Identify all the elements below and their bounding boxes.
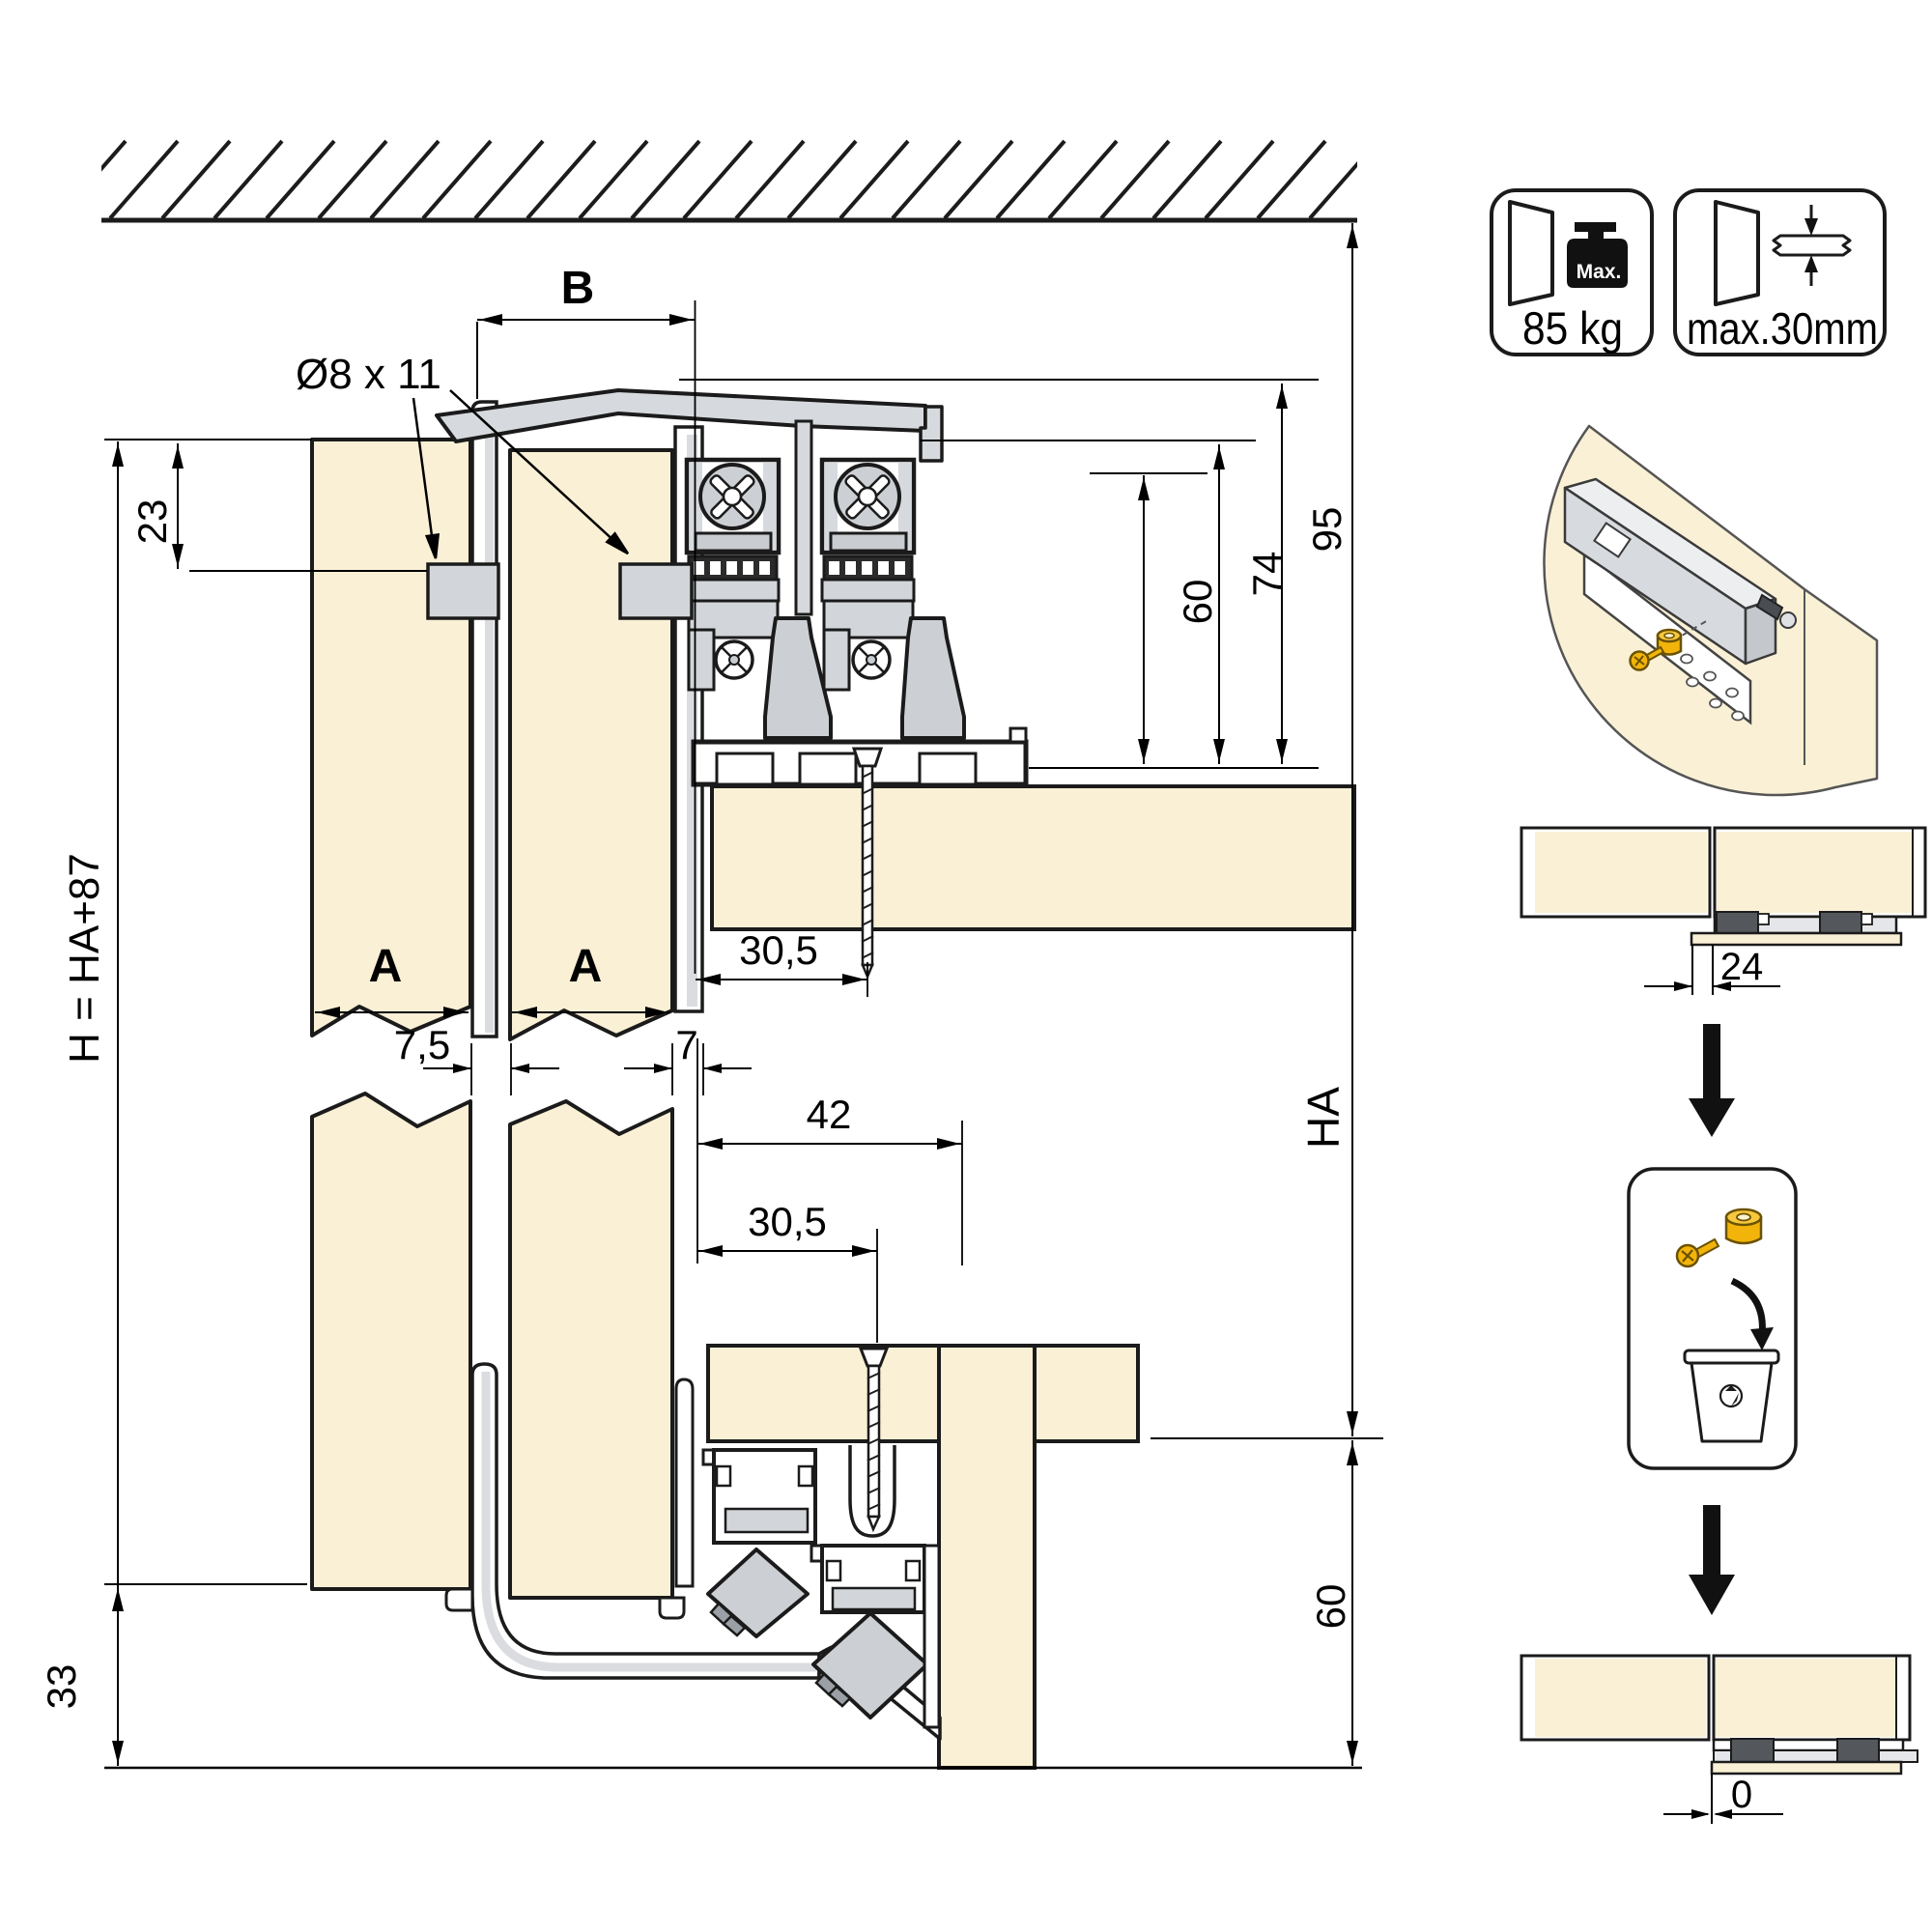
svg-text:60: 60 (1308, 1584, 1353, 1630)
svg-text:A: A (569, 941, 603, 992)
svg-text:7: 7 (675, 1022, 697, 1067)
svg-text:24: 24 (1720, 946, 1764, 988)
svg-text:HA: HA (1298, 1087, 1349, 1149)
svg-text:30,5: 30,5 (748, 1199, 827, 1244)
svg-text:7,5: 7,5 (394, 1022, 450, 1067)
svg-text:60: 60 (1175, 580, 1220, 625)
svg-text:A: A (369, 941, 403, 992)
svg-text:95: 95 (1304, 507, 1350, 553)
svg-text:33: 33 (39, 1664, 84, 1710)
svg-text:H = HA+87: H = HA+87 (61, 853, 108, 1064)
svg-text:74: 74 (1244, 552, 1290, 597)
svg-text:42: 42 (807, 1092, 852, 1137)
svg-text:Ø8 x 11: Ø8 x 11 (296, 351, 441, 398)
svg-text:23: 23 (129, 499, 175, 545)
svg-text:Max.: Max. (1577, 261, 1622, 283)
svg-text:30,5: 30,5 (739, 927, 818, 973)
svg-text:B: B (561, 263, 595, 314)
svg-text:85 kg: 85 kg (1522, 302, 1623, 354)
svg-text:0: 0 (1731, 1774, 1752, 1816)
svg-text:max.30mm: max.30mm (1687, 303, 1878, 354)
